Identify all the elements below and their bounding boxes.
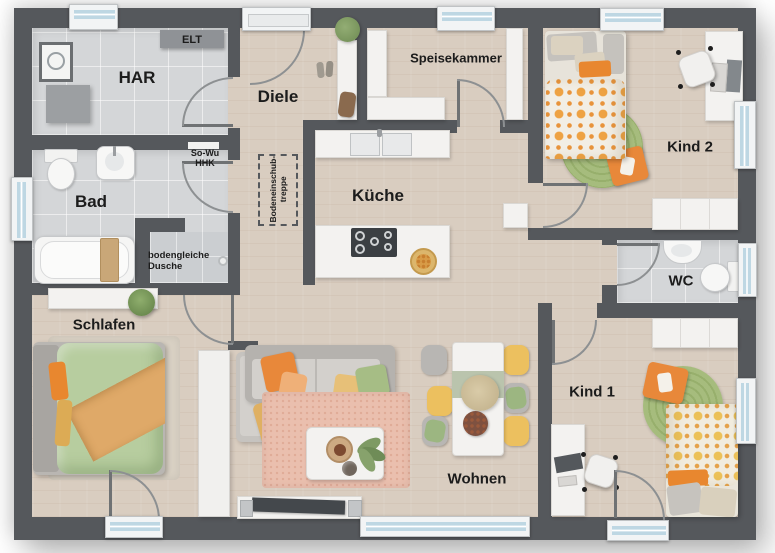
loft-ladder-label-line1: Bodeneinschub-: [268, 156, 278, 223]
bathtub-caddy: [100, 238, 119, 282]
wardrobe-seam: [709, 319, 710, 347]
wall-kind2-left-2: [528, 228, 543, 240]
dusche-line2: Dusche: [148, 261, 182, 272]
dining-chair-yellow: [503, 416, 529, 446]
wardrobe: [652, 198, 738, 230]
window-bad: [11, 177, 33, 241]
entrance-door: [242, 7, 311, 31]
burner-icon: [355, 244, 365, 254]
kitchen-sink-right: [382, 133, 412, 156]
room-label-schlafen: Schlafen: [73, 317, 136, 334]
hall-sideboard: [503, 203, 528, 228]
shower-head-icon: [218, 256, 228, 266]
pillow-orange: [579, 60, 612, 78]
bed-duvet-dotted: [546, 79, 625, 159]
loft-ladder-label-line2: treppe: [278, 176, 288, 202]
wall-kind1-left: [538, 318, 552, 517]
terrace-door-schlafen: [105, 516, 163, 538]
wall-kind1-top-2: [597, 303, 738, 318]
wall-mid-1: [228, 128, 240, 160]
floor-plan: ELT Bodeneinschub- treppe: [0, 0, 775, 553]
wall-wc-left-2: [602, 285, 617, 303]
dusche-line1: bodengleiche: [148, 250, 209, 261]
table-centerpiece: [461, 375, 499, 411]
wc-sink-basin: [671, 244, 692, 257]
pantry-shelf-left: [367, 30, 387, 97]
pillow-beige: [551, 36, 583, 55]
terrace-door-kind1: [607, 520, 669, 541]
caster-icon: [676, 50, 681, 55]
pillow-yellow: [54, 400, 72, 447]
window-har: [69, 4, 118, 30]
caster-icon: [710, 82, 715, 87]
shoe-icon: [325, 61, 333, 77]
wardrobe-seam: [680, 199, 681, 229]
speaker-icon: [240, 500, 253, 517]
plant-icon: [128, 289, 155, 316]
wardrobe-seam: [680, 319, 681, 347]
har-appliance: [46, 85, 90, 123]
window-kind2-top: [600, 8, 664, 31]
chair-pillow-green: [505, 386, 528, 411]
so-wu-line1: So-Wu: [191, 148, 219, 158]
toy-icon: [657, 372, 674, 393]
wc-toilet: [700, 263, 730, 292]
wardrobe-seam: [709, 199, 710, 229]
wall-kind2-left: [528, 28, 543, 183]
speaker-icon: [348, 500, 362, 517]
tray-berries: [334, 444, 346, 456]
burner-icon: [384, 243, 392, 251]
burner-icon: [384, 231, 392, 239]
plant-icon: [335, 17, 360, 42]
wall-wc-left-1: [602, 240, 617, 245]
toilet: [47, 158, 75, 190]
caster-icon: [708, 46, 713, 51]
single-bed: [545, 31, 626, 159]
double-bed: [33, 342, 165, 475]
pantry-shelf-right: [506, 28, 523, 120]
pillow-beige: [699, 486, 738, 517]
room-label-kind2: Kind 2: [667, 139, 713, 156]
room-label-speisekammer: Speisekammer: [410, 51, 502, 66]
room-label-kueche: Küche: [352, 186, 404, 206]
dining-chair-yellow: [503, 345, 529, 375]
pantry-shelf-bottom: [367, 97, 445, 120]
kitchen-sink-left: [350, 133, 380, 156]
wardrobe: [652, 318, 738, 348]
kitchen-faucet: [377, 129, 382, 137]
washing-machine-door-icon: [47, 52, 65, 70]
room-label-bad: Bad: [75, 192, 107, 212]
partition-schlafen-wohnen: [198, 350, 230, 517]
room-label-kind1: Kind 1: [569, 384, 615, 401]
caster-icon: [582, 487, 587, 492]
fruit-bowl: [463, 411, 488, 436]
keyboard-icon: [558, 475, 578, 487]
so-wu-line2: HHK: [195, 158, 215, 168]
window-speisekammer: [437, 6, 495, 31]
burner-icon: [355, 231, 365, 241]
wall-kind1-top-1: [538, 303, 552, 318]
wall-kueche-left: [303, 120, 315, 285]
caster-icon: [613, 455, 618, 460]
wall-har-diele: [228, 28, 240, 77]
plant-icon: [352, 434, 386, 476]
room-label-diele: Diele: [258, 87, 299, 107]
window-wc: [738, 243, 757, 297]
single-bed: [666, 404, 738, 517]
dining-chair-gray: [421, 345, 447, 375]
window-kind2-right: [734, 101, 756, 169]
caster-icon: [581, 452, 586, 457]
burner-icon: [370, 237, 379, 246]
room-label-wc: WC: [669, 273, 694, 290]
wall-shower-h: [135, 218, 185, 232]
dining-chair-yellow: [427, 386, 453, 416]
room-label-wohnen: Wohnen: [448, 471, 507, 488]
bathroom-faucet: [113, 146, 116, 156]
room-label-har: HAR: [119, 68, 156, 88]
elt-label: ELT: [182, 34, 202, 46]
window-wohnen: [360, 516, 530, 537]
window-kind1-right: [736, 378, 756, 444]
dusche-label: bodengleiche Dusche: [148, 250, 210, 273]
fruit-bowl-fruit: [416, 254, 431, 269]
so-wu-hhk-label: So-Wu HHK: [186, 148, 224, 169]
caster-icon: [678, 84, 683, 89]
